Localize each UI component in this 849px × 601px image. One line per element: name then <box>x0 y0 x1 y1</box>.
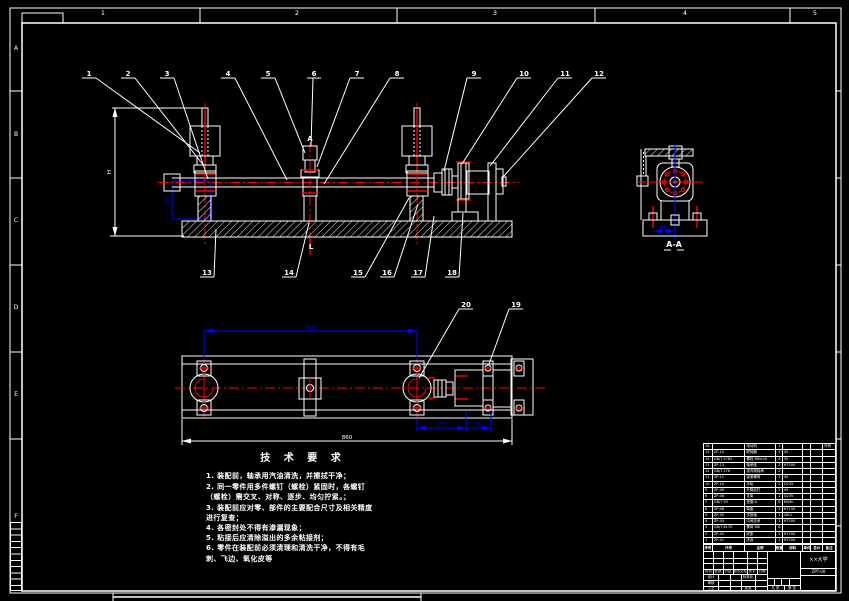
bom-cell-no: 14 <box>704 457 713 462</box>
bom-cell-code: GB/T 6170 <box>713 525 745 530</box>
bom-cell-w2 <box>811 532 823 537</box>
bom-cell-no: 16 <box>704 444 713 449</box>
bom-cell-mat: Q235 <box>783 482 804 487</box>
balloon-3: 3 <box>165 70 170 78</box>
bom-cell-name: 床身 <box>745 538 776 543</box>
tech-line-2: 2. 同一零件用多件螺钉（螺栓）紧固时，各螺钉 <box>206 482 365 492</box>
bom-cell-w1 <box>803 513 811 518</box>
zone-left-e: E <box>10 391 22 398</box>
zone-left-b: B <box>10 131 22 138</box>
bom-cell-name: 底座 <box>745 532 776 537</box>
cad-drawing-sheet: .w { stroke:#fff; fill:none; stroke-widt… <box>0 0 849 601</box>
tb-total-sheets: 共 张 <box>767 586 784 591</box>
tb-org: ××大学 <box>800 556 837 564</box>
bom-cell-w2 <box>811 475 823 480</box>
bom-cell-name: 升降丝杠 <box>745 488 776 493</box>
bom-cell-w1 <box>803 507 811 512</box>
bom-cell-no: 12 <box>704 469 713 474</box>
bom-cell-no: 3 <box>704 525 713 530</box>
balloon-20: 20 <box>461 301 471 309</box>
bom-cell-code <box>713 444 745 449</box>
tb-label-standard: 标准化 <box>741 575 755 580</box>
bom-cell-w2 <box>811 469 823 474</box>
bom-cell-w2 <box>811 538 823 543</box>
bom-cell-qty: 4 <box>776 457 783 462</box>
bom-cell-code: GB/T 5782 <box>713 457 745 462</box>
balloon-9: 9 <box>472 70 477 78</box>
bom-cell-w2 <box>811 525 823 530</box>
bom-cell-w2 <box>811 500 823 505</box>
balloon-13: 13 <box>202 269 212 277</box>
tech-line-8: 6. 零件在装配前必须清理和清洗干净，不得有毛 <box>206 543 365 553</box>
balloon-8: 8 <box>395 70 400 78</box>
bom-cell-code: ZP-01 <box>713 538 745 543</box>
tech-line-5: 进行复查； <box>206 513 243 523</box>
bom-cell-no: 4 <box>704 519 713 524</box>
bom-cell-mat: HT200 <box>783 532 804 537</box>
bom-cell-w2 <box>811 513 823 518</box>
bom-cell-w1 <box>803 538 811 543</box>
bom-cell-w1 <box>803 525 811 530</box>
bom-cell-w1 <box>803 494 811 499</box>
bom-cell-mat: HT150 <box>783 507 804 512</box>
bom-cell-code: ZP-09 <box>713 488 745 493</box>
bom-cell-w2 <box>811 482 823 487</box>
bom-cell-mat: 45 <box>783 450 804 455</box>
bom-cell-w1 <box>803 457 811 462</box>
bom-cell-code: GB/T 276 <box>713 469 745 474</box>
tb-label-audit: 审核 <box>704 581 718 586</box>
bom-cell-note <box>823 475 835 480</box>
balloon-6: 6 <box>312 70 317 78</box>
front-view: H 50 <box>107 103 520 255</box>
plan-dim-span: 400 <box>305 325 316 331</box>
bom-cell-w1 <box>803 519 811 524</box>
balloon-17: 17 <box>413 269 423 277</box>
bom-cell-qty: 2 <box>776 469 783 474</box>
bom-cell-w2 <box>811 444 823 449</box>
bom-cell-note <box>823 469 835 474</box>
bom-cell-w1 <box>803 450 811 455</box>
bom-cell-w1 <box>803 475 811 480</box>
bom-cell-code: ZP-06 <box>713 507 745 512</box>
bom-cell-note <box>823 532 835 537</box>
bom-cell-qty: 2 <box>776 488 783 493</box>
balloon-16: 16 <box>382 269 392 277</box>
tb-label-count: 处数 <box>713 569 723 574</box>
bom-cell-w2 <box>811 494 823 499</box>
bom-cell-w2 <box>811 463 823 468</box>
front-height-dim: H <box>107 170 113 174</box>
bom-cell-mat <box>783 444 804 449</box>
bom-cell-qty: 1 <box>776 513 783 518</box>
bom-cell-name: 端盖 <box>745 507 776 512</box>
plan-coupling-motor <box>427 361 524 415</box>
bom-cell-code: ZP-08 <box>713 494 745 499</box>
section-bolt-dim: 68 <box>660 225 667 231</box>
bom-cell-no: 7 <box>704 500 713 505</box>
bom-cell-w1 <box>803 463 811 468</box>
zone-left-f: F <box>10 513 22 520</box>
bom-cell-note <box>823 538 835 543</box>
balloon-5: 5 <box>266 70 271 78</box>
bom-cell-w2 <box>811 507 823 512</box>
zone-left-d: D <box>10 304 22 311</box>
zone-left-c: C <box>10 217 22 224</box>
balloon-18: 18 <box>447 269 457 277</box>
bom-cell-name: 深沟球轴承 <box>745 469 776 474</box>
bom-cell-qty: 8 <box>776 500 783 505</box>
bom-cell-w1 <box>803 444 811 449</box>
bom-cell-note <box>823 519 835 524</box>
tech-line-7: 5. 粘接后应清除溢出的多余粘接剂； <box>206 533 328 543</box>
balloon-11: 11 <box>560 70 570 78</box>
balloon-15: 15 <box>353 269 363 277</box>
section-view: 68 A-A <box>637 144 707 250</box>
tb-page-no: 第 张 <box>784 586 800 591</box>
balloon-1: 1 <box>87 70 92 78</box>
bom-cell-mat: 35 <box>783 457 804 462</box>
plan-view: 400 100 56 860 20 19 <box>175 301 545 445</box>
bom-cell-mat: 65Mn <box>783 500 804 505</box>
balloon-14: 14 <box>284 269 294 277</box>
middle-support <box>301 142 319 255</box>
bom-cell-name: 垫圈 8 <box>745 500 776 505</box>
bom-cell-code: ZP-13 <box>713 463 745 468</box>
bom-cell-mat <box>783 469 804 474</box>
bom-cell-qty: 1 <box>776 538 783 543</box>
zone-top-1: 1 <box>96 9 110 17</box>
bom-cell-w2 <box>811 457 823 462</box>
revision-stack <box>10 522 22 591</box>
balloon-19: 19 <box>511 301 521 309</box>
datum-label: A <box>307 135 313 143</box>
bom-cell-no: 6 <box>704 507 713 512</box>
tb-label-mark: 标记 <box>704 569 713 574</box>
bom-cell-name: 轴承座 <box>745 463 776 468</box>
balloon-12: 12 <box>594 70 604 78</box>
coupling-motor <box>434 162 506 221</box>
bom-cell-mat: 40Cr <box>783 513 804 518</box>
tb-label-approve: 批准 <box>741 586 755 591</box>
bom-cell-note <box>823 488 835 493</box>
bom-cell-name: 联轴器 <box>745 450 776 455</box>
balloon-7: 7 <box>355 70 360 78</box>
bom-cell-name: 锁紧螺母 <box>745 475 776 480</box>
bom-cell-name: 手轮 <box>745 482 776 487</box>
plan-dim-overall: 860 <box>342 435 353 441</box>
bom-cell-code: ZP-05 <box>713 513 745 518</box>
bom-cell-no: 11 <box>704 475 713 480</box>
bom-table: 16电动机1外购15ZP-15联轴器14514GB/T 5782螺栓 M8×20… <box>703 443 836 553</box>
bom-cell-name: 支架 <box>745 494 776 499</box>
bom-cell-w1 <box>803 500 811 505</box>
plan-right-bearing <box>403 359 431 417</box>
bom-cell-no: 15 <box>704 450 713 455</box>
bom-cell-no: 1 <box>704 538 713 543</box>
bom-cell-qty: 2 <box>776 482 783 487</box>
bom-cell-no: 13 <box>704 463 713 468</box>
bom-cell-no: 9 <box>704 488 713 493</box>
bom-cell-note <box>823 494 835 499</box>
tech-line-1: 1. 装配前，轴承用汽油清洗，并擦拭干净； <box>206 471 350 481</box>
tb-label-sign: 签字 <box>747 569 757 574</box>
balloon-10: 10 <box>519 70 529 78</box>
bom-cell-qty: 1 <box>776 450 783 455</box>
section-label: A-A <box>666 240 683 249</box>
bom-cell-mat: HT200 <box>783 538 804 543</box>
tech-line-3: （螺栓）需交叉、对称、逐步、均匀拧紧。； <box>206 492 351 502</box>
tb-label-date: 日期 <box>757 569 767 574</box>
plan-dim-a: 100 <box>436 422 447 428</box>
bom-rows: 16电动机1外购15ZP-15联轴器14514GB/T 5782螺栓 M8×20… <box>704 444 835 544</box>
zone-left-a: A <box>10 45 22 52</box>
bom-cell-mat: Q235 <box>783 494 804 499</box>
bom-cell-name: 中间支承 <box>745 519 776 524</box>
bom-cell-note <box>823 507 835 512</box>
bom-cell-w1 <box>803 469 811 474</box>
bom-cell-name: 螺栓 M8×20 <box>745 457 776 462</box>
tb-label-zone: 分区 <box>723 569 733 574</box>
balloon-2: 2 <box>126 70 131 78</box>
tb-drawing-code: ZPT-00 <box>800 569 837 574</box>
tb-label-docno: 更改文件号 <box>733 569 747 574</box>
bom-cell-w1 <box>803 532 811 537</box>
plan-dim-b: 56 <box>475 422 482 428</box>
bom-cell-name: 试验轴 <box>745 513 776 518</box>
span-label: L <box>309 243 314 251</box>
bom-cell-note: 外购 <box>823 444 835 449</box>
front-balloons: 1 2 3 4 5 6 7 8 9 10 11 12 13 14 15 16 1… <box>82 70 606 277</box>
bom-cell-mat: HT200 <box>783 463 804 468</box>
balloon-4: 4 <box>226 70 231 78</box>
zone-top-5: 5 <box>808 9 822 17</box>
bom-cell-w1 <box>803 488 811 493</box>
tb-label-process: 工艺 <box>704 586 718 591</box>
bom-cell-note <box>823 525 835 530</box>
bom-cell-no: 5 <box>704 513 713 518</box>
bom-cell-qty: 8 <box>776 525 783 530</box>
bom-cell-w2 <box>811 488 823 493</box>
zone-top-3: 3 <box>488 9 502 17</box>
bom-cell-qty: 1 <box>776 519 783 524</box>
bom-cell-no: 10 <box>704 482 713 487</box>
bom-cell-code: ZP-10 <box>713 482 745 487</box>
bom-cell-qty: 1 <box>776 494 783 499</box>
bom-cell-note <box>823 513 835 518</box>
title-block: 标记 处数 分区 更改文件号 签字 日期 设计 标准化 审核 工艺 批准 共 张… <box>703 551 836 591</box>
tech-line-9: 刺、飞边、氧化皮等 <box>206 554 273 564</box>
bom-cell-qty: 2 <box>776 507 783 512</box>
bom-cell-note <box>823 500 835 505</box>
tb-label-design: 设计 <box>704 575 718 580</box>
bom-cell-mat: 45 <box>783 475 804 480</box>
bom-cell-code: ZP-02 <box>713 532 745 537</box>
bom-cell-qty: 1 <box>776 444 783 449</box>
bom-cell-w2 <box>811 519 823 524</box>
bom-cell-qty: 1 <box>776 532 783 537</box>
bom-cell-note <box>823 457 835 462</box>
bom-cell-qty: 2 <box>776 475 783 480</box>
tech-line-4: 3. 装配前应对零、部件的主要配合尺寸及相关精度 <box>206 503 373 513</box>
bom-cell-note <box>823 482 835 487</box>
bom-cell-code: GB/T 93 <box>713 500 745 505</box>
tech-line-6: 4. 各密封处不得有渗漏现象； <box>206 523 306 533</box>
bom-cell-code: ZP-11 <box>713 475 745 480</box>
zone-top-2: 2 <box>290 9 304 17</box>
bom-cell-mat <box>783 525 804 530</box>
bom-cell-name: 螺母 M8 <box>745 525 776 530</box>
bom-cell-w1 <box>803 482 811 487</box>
zone-top-4: 4 <box>678 9 692 17</box>
bom-cell-note <box>823 463 835 468</box>
bom-cell-note <box>823 450 835 455</box>
bom-cell-name: 电动机 <box>745 444 776 449</box>
bom-cell-code: ZP-15 <box>713 450 745 455</box>
bom-cell-qty: 2 <box>776 463 783 468</box>
bom-cell-w2 <box>811 450 823 455</box>
bom-cell-no: 8 <box>704 494 713 499</box>
tech-requirements-title: 技 术 要 求 <box>238 449 368 464</box>
bom-cell-code: ZP-04 <box>713 519 745 524</box>
bom-cell-mat: 45 <box>783 488 804 493</box>
bom-cell-no: 2 <box>704 532 713 537</box>
detail-dim: 50 <box>165 196 171 203</box>
bom-cell-mat: HT200 <box>783 519 804 524</box>
